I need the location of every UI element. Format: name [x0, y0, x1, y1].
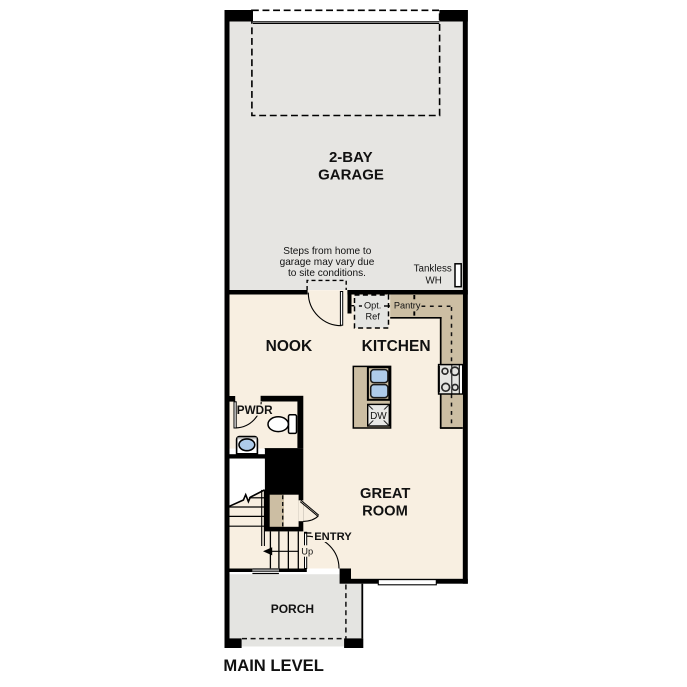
svg-text:ENTRY: ENTRY — [314, 531, 352, 543]
svg-text:Pantry: Pantry — [394, 301, 421, 311]
svg-text:NOOK: NOOK — [266, 338, 313, 355]
svg-text:PWDR: PWDR — [237, 404, 273, 417]
svg-text:GREAT: GREAT — [360, 486, 410, 502]
svg-text:Opt.: Opt. — [364, 301, 381, 311]
svg-text:DW: DW — [370, 411, 387, 422]
svg-text:PORCH: PORCH — [271, 602, 314, 616]
svg-text:Tankless: Tankless — [414, 264, 452, 275]
svg-text:MAIN LEVEL: MAIN LEVEL — [223, 656, 324, 675]
svg-text:Up: Up — [301, 547, 313, 557]
svg-text:Ref: Ref — [366, 311, 381, 321]
svg-text:garage may vary due: garage may vary due — [280, 257, 375, 268]
svg-text:to site conditions.: to site conditions. — [288, 268, 366, 279]
svg-text:2-BAY: 2-BAY — [329, 149, 373, 166]
svg-text:ROOM: ROOM — [362, 503, 408, 519]
svg-text:KITCHEN: KITCHEN — [362, 338, 431, 355]
svg-text:Steps from home to: Steps from home to — [283, 246, 371, 257]
svg-text:WH: WH — [426, 275, 442, 286]
svg-text:GARAGE: GARAGE — [318, 166, 384, 183]
